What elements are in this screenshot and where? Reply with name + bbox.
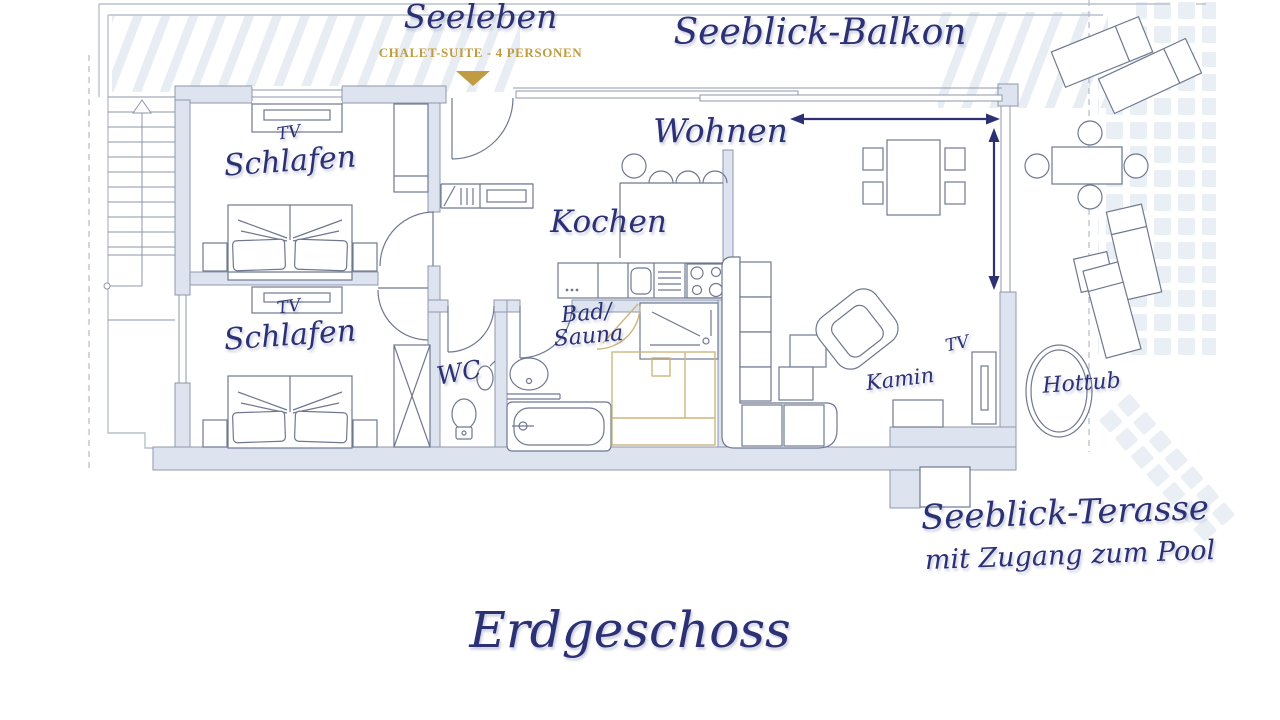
kitchen-counter (558, 263, 728, 298)
coat-rack (441, 184, 533, 208)
suite-subtitle: CHALET-SUITE - 4 PERSONEN (368, 46, 593, 60)
floor-label: Erdgeschoss (420, 604, 840, 657)
fireplace (893, 400, 943, 427)
suite-title: Seeleben (368, 0, 593, 35)
living-label: Wohnen (638, 114, 803, 149)
sofa (722, 257, 837, 448)
tv-stand (972, 352, 996, 424)
floor-plan-page: Seeleben CHALET-SUITE - 4 PERSONEN Seebl… (0, 0, 1280, 720)
balcony-label: Seeblick-Balkon (655, 14, 985, 52)
staircase (104, 97, 176, 320)
window-bedroom1 (252, 86, 342, 103)
dining-set (863, 140, 965, 215)
kitchen-label: Kochen (536, 206, 681, 239)
window-bedroom2 (176, 295, 190, 383)
